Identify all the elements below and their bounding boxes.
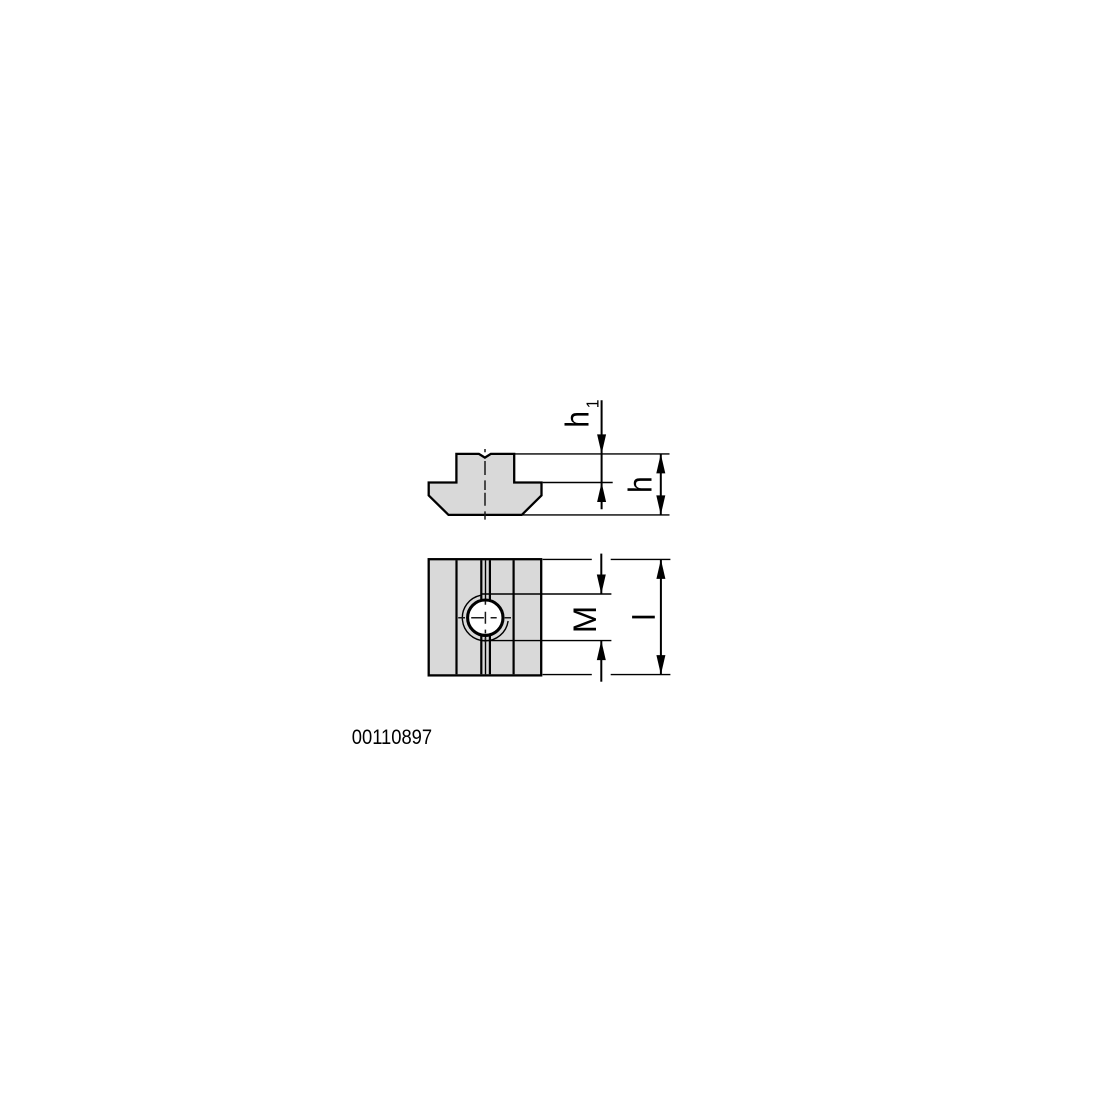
svg-text:h: h — [621, 476, 659, 493]
svg-text:00110897: 00110897 — [352, 725, 432, 749]
svg-text:h: h — [558, 411, 596, 428]
svg-text:M: M — [566, 606, 603, 634]
svg-text:1: 1 — [583, 399, 603, 408]
